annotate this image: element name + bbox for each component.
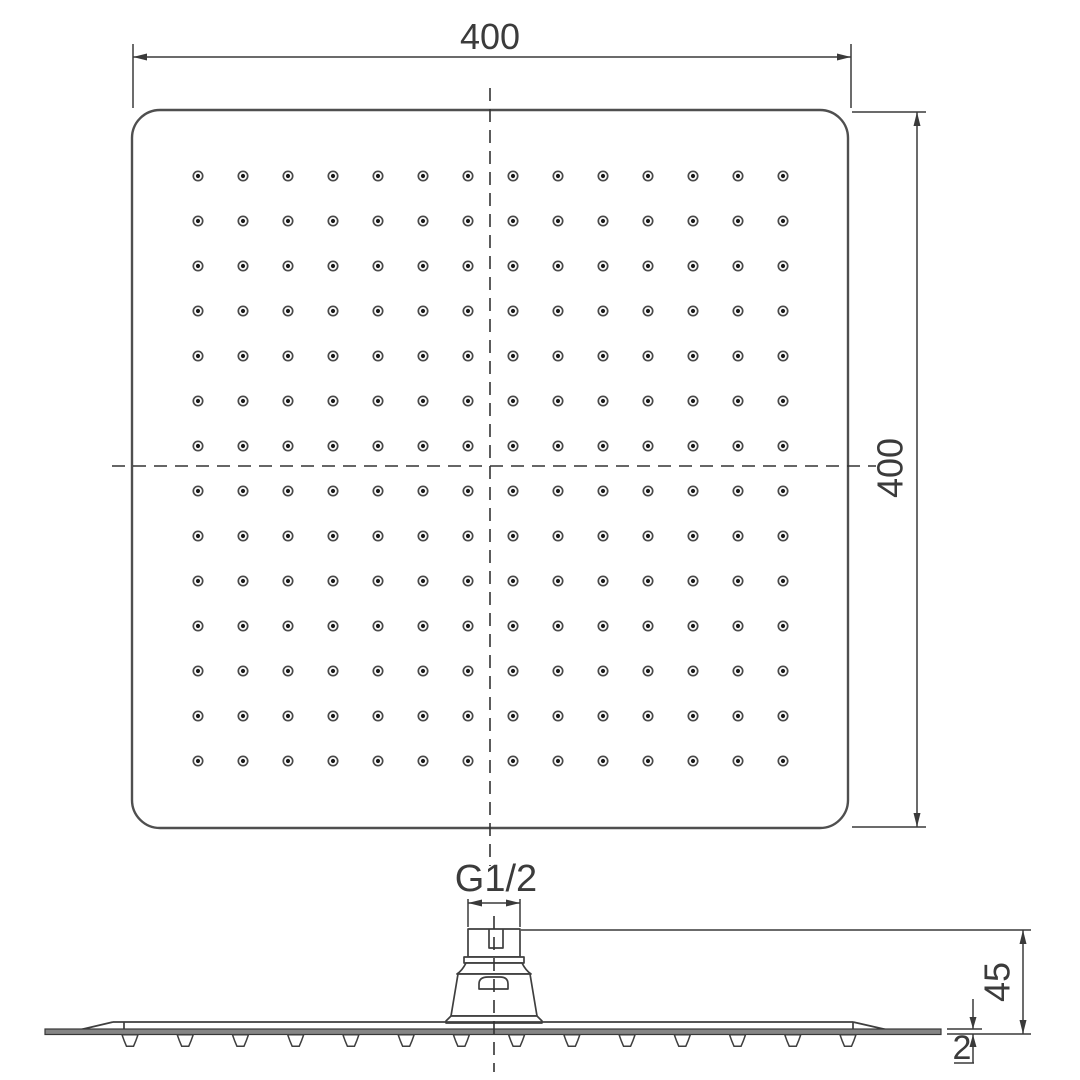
spray-bump — [122, 1035, 138, 1047]
nozzle-dot — [331, 354, 335, 358]
nozzle-dot — [286, 399, 290, 403]
nozzle-dot — [376, 759, 380, 763]
nozzle-dot — [556, 219, 560, 223]
nozzle-dot — [556, 174, 560, 178]
nozzle-dot — [331, 219, 335, 223]
nozzle-dot — [196, 669, 200, 673]
nozzle-dot — [421, 624, 425, 628]
nozzle-dot — [331, 264, 335, 268]
nozzle-dot — [736, 579, 740, 583]
nozzle-dot — [601, 579, 605, 583]
nozzle-dot — [781, 579, 785, 583]
nozzle-dot — [736, 534, 740, 538]
nozzle-dot — [376, 489, 380, 493]
nozzle-dot — [646, 309, 650, 313]
nozzle-dot — [286, 489, 290, 493]
nozzle-dot — [376, 354, 380, 358]
nozzle-dot — [466, 444, 470, 448]
nozzle-dot — [511, 444, 515, 448]
spray-bump — [674, 1035, 690, 1047]
nozzle-dot — [376, 219, 380, 223]
nozzle-dot — [286, 219, 290, 223]
nozzle-dot — [781, 534, 785, 538]
dimension-thread: G1/2 — [455, 858, 537, 927]
nozzle-dot — [511, 219, 515, 223]
nozzle-dot — [196, 264, 200, 268]
dimension-head-height: 45 — [521, 930, 1031, 1034]
nozzle-dot — [601, 264, 605, 268]
nozzle-dot — [781, 624, 785, 628]
nozzle-dot — [241, 714, 245, 718]
nozzle-dot — [286, 714, 290, 718]
nozzle-dot — [601, 219, 605, 223]
nozzle-dot — [691, 309, 695, 313]
arrowhead-top — [914, 112, 921, 126]
nozzle-dot — [241, 219, 245, 223]
arrowhead-top — [1020, 930, 1027, 944]
nozzle-dot — [781, 219, 785, 223]
nozzle-dot — [241, 354, 245, 358]
spray-bump — [564, 1035, 580, 1047]
nozzle-dot — [556, 309, 560, 313]
nozzle-dot — [646, 714, 650, 718]
nozzle-dot — [511, 354, 515, 358]
nozzle-dot — [331, 534, 335, 538]
nozzle-dot — [421, 309, 425, 313]
nozzle-dot — [556, 669, 560, 673]
nozzle-dot — [736, 219, 740, 223]
nozzle-dot — [511, 669, 515, 673]
arrowhead-bottom — [1020, 1020, 1027, 1034]
nozzle-dot — [646, 534, 650, 538]
nozzle-dot — [691, 489, 695, 493]
nozzle-dot — [601, 309, 605, 313]
nozzle-dot — [376, 444, 380, 448]
nozzle-dot — [691, 219, 695, 223]
spray-bump — [619, 1035, 635, 1047]
nozzle-dot — [421, 759, 425, 763]
nozzle-dot — [196, 219, 200, 223]
nozzle-dot — [691, 174, 695, 178]
nozzle-dot — [196, 759, 200, 763]
nozzle-dot — [691, 534, 695, 538]
nozzle-dot — [466, 219, 470, 223]
nozzle-dot — [331, 399, 335, 403]
nozzle-dot — [781, 489, 785, 493]
nozzle-dot — [196, 174, 200, 178]
arrowhead-left — [468, 900, 482, 907]
nozzle-dot — [331, 579, 335, 583]
nozzle-dot — [511, 579, 515, 583]
nozzle-dot — [286, 444, 290, 448]
drawing-page: 400 400 — [0, 0, 1080, 1080]
nozzle-dot — [421, 219, 425, 223]
nozzle-dot — [736, 444, 740, 448]
nozzle-dot — [601, 444, 605, 448]
nozzle-dot — [511, 534, 515, 538]
nozzle-dot — [331, 309, 335, 313]
nozzle-dot — [601, 669, 605, 673]
nozzle-dot — [286, 669, 290, 673]
nozzle-dot — [466, 579, 470, 583]
spray-bump-row — [122, 1035, 856, 1047]
nozzle-dot — [781, 174, 785, 178]
nozzle-dot — [241, 669, 245, 673]
nozzle-dot — [241, 309, 245, 313]
arrowhead-right — [837, 54, 851, 61]
nozzle-dot — [286, 579, 290, 583]
nozzle-dot — [781, 399, 785, 403]
nozzle-dot — [286, 174, 290, 178]
nozzle-dot — [376, 399, 380, 403]
spray-bump — [343, 1035, 359, 1047]
nozzle-dot — [511, 714, 515, 718]
nozzle-dot — [736, 714, 740, 718]
nozzle-dot — [691, 759, 695, 763]
nozzle-dot — [196, 534, 200, 538]
nozzle-dot — [196, 399, 200, 403]
nozzle-dot — [196, 489, 200, 493]
nozzle-dot — [736, 489, 740, 493]
spray-bump — [177, 1035, 193, 1047]
nozzle-dot — [601, 624, 605, 628]
nozzle-dot — [466, 174, 470, 178]
arrowhead-down — [970, 1017, 977, 1029]
nozzle-dot — [421, 669, 425, 673]
nozzle-dot — [646, 444, 650, 448]
nozzle-dot — [241, 624, 245, 628]
nozzle-dot — [241, 579, 245, 583]
arrowhead-bottom — [914, 813, 921, 827]
nozzle-dot — [466, 309, 470, 313]
nozzle-dot — [466, 624, 470, 628]
nozzle-dot — [601, 489, 605, 493]
nozzle-dot — [331, 759, 335, 763]
nozzle-dot — [286, 624, 290, 628]
nozzle-dot — [556, 399, 560, 403]
nozzle-dot — [511, 264, 515, 268]
nozzle-dot — [601, 399, 605, 403]
dimension-thickness: 2 — [947, 999, 982, 1067]
nozzle-dot — [736, 354, 740, 358]
nozzle-dot — [781, 354, 785, 358]
nozzle-dot — [646, 669, 650, 673]
spray-bump — [288, 1035, 304, 1047]
dimension-head-height-label: 45 — [977, 962, 1018, 1002]
dimension-width: 400 — [133, 16, 851, 108]
nozzle-dot — [331, 489, 335, 493]
nozzle-dot — [196, 579, 200, 583]
nozzle-dot — [376, 714, 380, 718]
nozzle-dot — [691, 399, 695, 403]
nozzle-dot — [466, 759, 470, 763]
nozzle-dot — [286, 264, 290, 268]
arrowhead-left — [133, 54, 147, 61]
side-view — [45, 916, 941, 1072]
nozzle-dot — [511, 174, 515, 178]
nozzle-dot — [466, 534, 470, 538]
nozzle-dot — [421, 489, 425, 493]
nozzle-dot — [376, 534, 380, 538]
nozzle-dot — [421, 534, 425, 538]
nozzle-dot — [736, 759, 740, 763]
nozzle-dot — [376, 264, 380, 268]
nozzle-dot — [241, 399, 245, 403]
nozzle-dot — [376, 624, 380, 628]
nozzle-dot — [286, 354, 290, 358]
nozzle-dot — [556, 354, 560, 358]
nozzle-dot — [466, 399, 470, 403]
nozzle-dot — [241, 444, 245, 448]
nozzle-dot — [556, 264, 560, 268]
dimension-height-label: 400 — [870, 438, 911, 498]
nozzle-dot — [736, 264, 740, 268]
nozzle-dot — [511, 759, 515, 763]
nozzle-dot — [241, 534, 245, 538]
spray-bump — [509, 1035, 525, 1047]
nozzle-dot — [511, 309, 515, 313]
plate-edge-strip — [45, 1029, 941, 1035]
nozzle-dot — [556, 579, 560, 583]
dimension-height: 400 — [852, 112, 926, 827]
nozzle-dot — [421, 264, 425, 268]
nozzle-dot — [421, 174, 425, 178]
nozzle-dot — [781, 669, 785, 673]
nozzle-dot — [421, 444, 425, 448]
nozzle-dot — [286, 759, 290, 763]
nozzle-dot — [781, 444, 785, 448]
nozzle-dot — [601, 534, 605, 538]
nozzle-dot — [466, 354, 470, 358]
nozzle-dot — [511, 399, 515, 403]
nozzle-dot — [646, 219, 650, 223]
nozzle-dot — [736, 309, 740, 313]
nozzle-dot — [196, 714, 200, 718]
nozzle-dot — [331, 714, 335, 718]
nozzle-dot — [736, 399, 740, 403]
nozzle-dot — [556, 624, 560, 628]
nozzle-dot — [781, 309, 785, 313]
nozzle-dot — [421, 399, 425, 403]
nozzle-dot — [196, 309, 200, 313]
nozzle-dot — [421, 354, 425, 358]
nozzle-dot — [781, 264, 785, 268]
nozzle-dot — [556, 444, 560, 448]
nozzle-dot — [421, 579, 425, 583]
nozzle-dot — [646, 759, 650, 763]
nozzle-dot — [646, 399, 650, 403]
technical-drawing: 400 400 — [0, 0, 1080, 1080]
nozzle-dot — [331, 444, 335, 448]
nozzle-dot — [556, 759, 560, 763]
nozzle-dot — [736, 624, 740, 628]
nozzle-dot — [691, 579, 695, 583]
nozzle-dot — [601, 759, 605, 763]
nozzle-dot — [466, 489, 470, 493]
spray-bump — [232, 1035, 248, 1047]
nozzle-dot — [196, 444, 200, 448]
nozzle-dot — [646, 489, 650, 493]
nozzle-dot — [781, 759, 785, 763]
nozzle-dot — [466, 669, 470, 673]
nozzle-dot — [646, 624, 650, 628]
nozzle-dot — [241, 759, 245, 763]
dimension-thread-label: G1/2 — [455, 858, 537, 900]
nozzle-dot — [601, 714, 605, 718]
nozzle-dot — [511, 489, 515, 493]
spray-bump — [785, 1035, 801, 1047]
nozzle-dot — [691, 714, 695, 718]
nozzle-dot — [376, 309, 380, 313]
nozzle-dot — [601, 354, 605, 358]
nozzle-dot — [646, 579, 650, 583]
nozzle-dot — [286, 534, 290, 538]
spray-bump — [840, 1035, 856, 1047]
nozzle-dot — [646, 174, 650, 178]
nozzle-dot — [691, 624, 695, 628]
nozzle-dot — [691, 264, 695, 268]
arrowhead-right — [506, 900, 520, 907]
nozzle-dot — [241, 264, 245, 268]
nozzle-dot — [511, 624, 515, 628]
dimension-thickness-label: 2 — [953, 1029, 972, 1067]
nozzle-dot — [376, 174, 380, 178]
nozzle-dot — [286, 309, 290, 313]
nozzle-dot — [331, 624, 335, 628]
nozzle-dot — [466, 714, 470, 718]
nozzle-dot — [646, 264, 650, 268]
dimension-width-label: 400 — [460, 16, 520, 57]
nozzle-dot — [241, 174, 245, 178]
nozzle-dot — [556, 714, 560, 718]
spray-bump — [730, 1035, 746, 1047]
nozzle-dot — [781, 714, 785, 718]
nozzle-dot — [376, 669, 380, 673]
nozzle-dot — [736, 174, 740, 178]
nozzle-dot — [466, 264, 470, 268]
nozzle-dot — [691, 354, 695, 358]
nozzle-dot — [196, 624, 200, 628]
top-view — [112, 88, 876, 866]
nozzle-dot — [376, 579, 380, 583]
nozzle-dot — [331, 174, 335, 178]
nozzle-dot — [646, 354, 650, 358]
nozzle-dot — [241, 489, 245, 493]
nozzle-dot — [601, 174, 605, 178]
spray-bump — [453, 1035, 469, 1047]
nozzle-dot — [331, 669, 335, 673]
nozzle-dot — [691, 444, 695, 448]
nozzle-dot — [421, 714, 425, 718]
nozzle-dot — [691, 669, 695, 673]
nozzle-dot — [736, 669, 740, 673]
spray-bump — [398, 1035, 414, 1047]
nozzle-dot — [556, 534, 560, 538]
nozzle-dot — [196, 354, 200, 358]
nozzle-dot — [556, 489, 560, 493]
